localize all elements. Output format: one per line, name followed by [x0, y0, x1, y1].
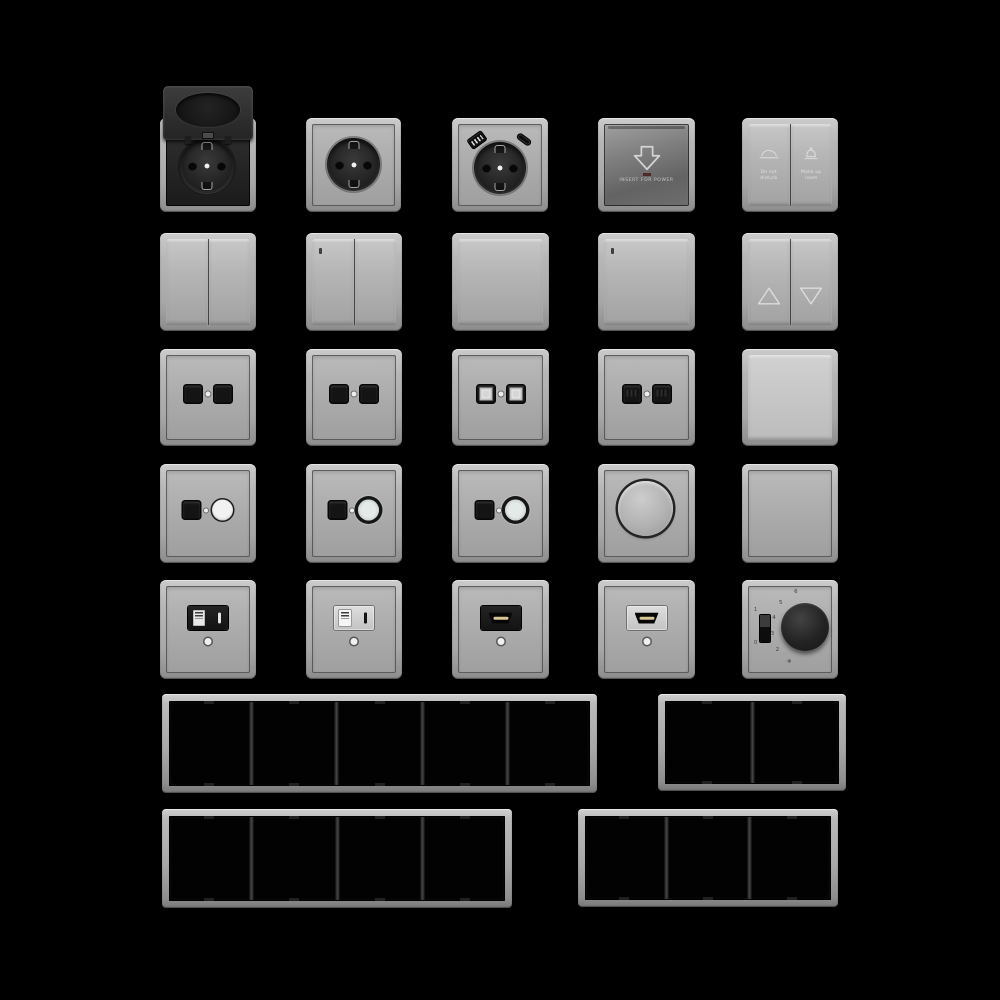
button-label: Make up room — [791, 170, 833, 182]
frame-openings — [169, 816, 505, 901]
data-port-left — [623, 386, 640, 403]
shutter-switch[interactable] — [742, 233, 838, 331]
socket-plate — [312, 124, 395, 206]
outlet-plate — [166, 355, 250, 440]
pin-hole-right — [363, 160, 372, 169]
rocker-right[interactable] — [208, 239, 251, 325]
lid-latch — [202, 132, 214, 139]
outlet-plate — [312, 355, 396, 440]
frame-opening — [254, 816, 334, 901]
scale-mark: ❄ — [787, 659, 792, 665]
scale-mark: 2 — [776, 647, 780, 653]
hdmi-module — [481, 606, 521, 630]
frame-openings — [665, 701, 839, 784]
center-screw — [498, 392, 503, 397]
center-screw — [350, 508, 354, 512]
product-grid: INSERT FOR POWER Do not disturb Make up … — [0, 0, 1000, 1000]
tv-data-outlet-ring[interactable] — [306, 464, 402, 563]
earth-clip-top — [348, 141, 359, 149]
data-port-left — [185, 386, 202, 403]
lid-hinge — [225, 136, 231, 144]
switch-area — [748, 239, 832, 325]
usb-c-port — [517, 133, 531, 145]
usb-a-port — [339, 610, 351, 626]
frame-opening — [340, 816, 420, 901]
outlet-plate — [458, 470, 543, 557]
usb-a-port — [193, 610, 205, 626]
earth-clip-bottom — [495, 183, 506, 191]
center-screw — [643, 638, 650, 645]
thermostat-dial[interactable]: 1 065432❄ — [742, 580, 838, 679]
switch-area — [748, 355, 832, 440]
card-slot-seam — [608, 126, 685, 129]
data-port — [183, 502, 200, 519]
usb-c-port — [364, 613, 368, 624]
frame-opening — [425, 701, 505, 786]
rotary-dimmer[interactable] — [598, 464, 695, 563]
rocker-switch-2gang[interactable] — [160, 233, 256, 331]
frame-opening — [169, 816, 249, 901]
pin-hole-left — [335, 160, 344, 169]
frame-opening — [585, 816, 664, 900]
rocker-left[interactable] — [312, 239, 354, 325]
schuko-socket[interactable] — [306, 118, 401, 212]
port-row — [183, 500, 233, 521]
coax-port — [212, 500, 233, 521]
outlet-plate — [458, 355, 543, 440]
outlet-plate — [604, 586, 689, 673]
thermostat-plate: 1 065432❄ — [748, 586, 832, 673]
frame-opening — [510, 701, 590, 786]
switch-area — [604, 239, 689, 325]
center-screw — [351, 638, 358, 645]
button-label: Do not disturb — [748, 170, 790, 182]
scale-mark: 3 — [771, 631, 775, 637]
coax-port — [505, 500, 526, 521]
hdmi-outlet-light[interactable] — [598, 580, 695, 679]
usb-charger-outlet-black[interactable] — [160, 580, 256, 679]
flip-lid[interactable] — [163, 86, 253, 140]
scale-mark: 5 — [779, 600, 783, 606]
status-led — [643, 173, 651, 176]
rocker[interactable] — [604, 239, 689, 325]
schuko-socket-flip-lid[interactable] — [160, 118, 256, 212]
usb-c-port — [218, 613, 222, 624]
switch-area — [312, 239, 396, 325]
frame-opening — [752, 816, 831, 900]
rocker[interactable] — [458, 239, 543, 325]
outlet-plate — [604, 355, 689, 440]
scale-mark: 4 — [772, 615, 776, 621]
do-not-disturb-icon — [758, 147, 779, 161]
rocker-switch-1gang-indicator[interactable] — [598, 233, 695, 331]
hdmi-module — [627, 606, 667, 630]
hdmi-port — [489, 613, 513, 624]
earth-clip-bottom — [202, 182, 213, 190]
earth-clip-top — [202, 142, 213, 150]
shutter-up-button[interactable] — [748, 239, 790, 325]
port-row — [623, 386, 670, 403]
data-port — [329, 502, 346, 519]
center-screw — [205, 638, 212, 645]
blank-cover-plate[interactable] — [742, 464, 838, 563]
keycard-power-switch[interactable]: INSERT FOR POWER — [598, 118, 695, 212]
frame-openings — [585, 816, 831, 900]
data-port — [476, 502, 493, 519]
arrow-up-icon — [756, 286, 781, 306]
data-outlet-2port-black[interactable] — [160, 349, 256, 446]
scale-mark: 6 — [794, 589, 798, 595]
rocker-left[interactable] — [166, 239, 208, 325]
frame-2gang[interactable] — [658, 694, 846, 791]
switch-area: Do not disturb Make up room — [748, 124, 832, 206]
frame-3gang[interactable] — [578, 809, 838, 907]
frame-opening — [339, 701, 419, 786]
outlet-plate — [312, 586, 396, 673]
port-row — [477, 386, 524, 403]
make-up-room-icon — [801, 147, 822, 161]
data-outlet-2port-pins[interactable] — [598, 349, 695, 446]
schuko-socket-usb[interactable] — [452, 118, 548, 212]
shutter-down-button[interactable] — [790, 239, 833, 325]
frame-4gang[interactable] — [162, 809, 512, 908]
arrow-down-icon — [799, 286, 824, 306]
center-screw — [351, 162, 356, 167]
usb-charger-outlet-light[interactable] — [306, 580, 402, 679]
data-port-right — [215, 386, 232, 403]
rocker[interactable] — [748, 355, 832, 440]
outlet-plate — [166, 470, 250, 557]
do-not-disturb-button[interactable]: Do not disturb — [748, 124, 790, 206]
usb-module — [188, 606, 228, 630]
indicator-led — [611, 248, 614, 254]
socket-recess — [180, 139, 234, 193]
dimmer-knob[interactable] — [618, 481, 673, 536]
indicator-led — [319, 248, 322, 254]
blank-plate — [748, 470, 832, 557]
frame-5gang[interactable] — [162, 694, 597, 793]
switch-off-label: 0 — [754, 640, 757, 646]
hdmi-outlet-black[interactable] — [452, 580, 549, 679]
rocker-switch-1gang[interactable] — [452, 233, 549, 331]
lid-recess — [176, 93, 240, 127]
switch-area — [458, 239, 543, 325]
socket-plate — [458, 124, 542, 206]
data-port-right — [507, 386, 524, 403]
rocker-switch-2gang-indicator[interactable] — [306, 233, 402, 331]
port-row — [185, 386, 232, 403]
pin-hole-left — [188, 162, 197, 171]
hdmi-port — [635, 613, 659, 624]
earth-clip-top — [495, 145, 506, 153]
outlet-plate — [312, 470, 396, 557]
power-switch[interactable] — [760, 615, 770, 642]
outlet-plate — [166, 586, 250, 673]
center-screw — [352, 392, 357, 397]
center-screw — [644, 392, 649, 397]
tv-data-outlet-ring-2[interactable] — [452, 464, 549, 563]
data-port-left — [477, 386, 494, 403]
make-up-room-button[interactable]: Make up room — [790, 124, 833, 206]
port-row — [331, 386, 378, 403]
earth-clip-bottom — [348, 180, 359, 188]
center-screw — [497, 638, 504, 645]
pin-hole-left — [482, 164, 491, 173]
tv-data-outlet-white[interactable] — [160, 464, 256, 563]
socket-recess — [474, 142, 526, 194]
center-screw — [498, 166, 503, 171]
switch-on-label: 1 — [754, 607, 757, 613]
socket-recess — [327, 138, 380, 191]
port-row — [476, 500, 526, 521]
center-screw — [206, 392, 211, 397]
frame-opening — [254, 701, 334, 786]
pin-hole-right — [509, 164, 518, 173]
data-outlet-2port-light[interactable] — [452, 349, 549, 446]
rocker-switch-plain[interactable] — [742, 349, 838, 446]
pin-hole-right — [217, 162, 226, 171]
usb-module — [334, 606, 374, 630]
frame-opening — [425, 816, 505, 901]
frame-opening — [665, 701, 750, 784]
data-port-right — [361, 386, 378, 403]
center-screw — [204, 508, 208, 512]
thermostat-knob[interactable] — [781, 603, 829, 651]
port-row — [329, 500, 379, 521]
outlet-plate — [458, 586, 543, 673]
frame-openings — [169, 701, 590, 786]
card-switch-label: INSERT FOR POWER — [604, 178, 689, 183]
data-outlet-2port-black-2[interactable] — [306, 349, 402, 446]
dimmer-plate — [604, 470, 689, 557]
coax-port — [358, 500, 379, 521]
card-slot-button[interactable]: INSERT FOR POWER — [604, 124, 689, 206]
data-port-left — [331, 386, 348, 403]
frame-opening — [755, 701, 840, 784]
frame-opening — [169, 701, 249, 786]
lid-hinge — [185, 136, 191, 144]
insert-arrow-icon — [633, 145, 660, 170]
frame-opening — [669, 816, 748, 900]
center-screw — [497, 508, 501, 512]
switch-area — [166, 239, 250, 325]
center-screw — [205, 164, 210, 169]
rocker-right[interactable] — [354, 239, 397, 325]
hotel-service-switch[interactable]: Do not disturb Make up room — [742, 118, 838, 212]
data-port-right — [653, 386, 670, 403]
